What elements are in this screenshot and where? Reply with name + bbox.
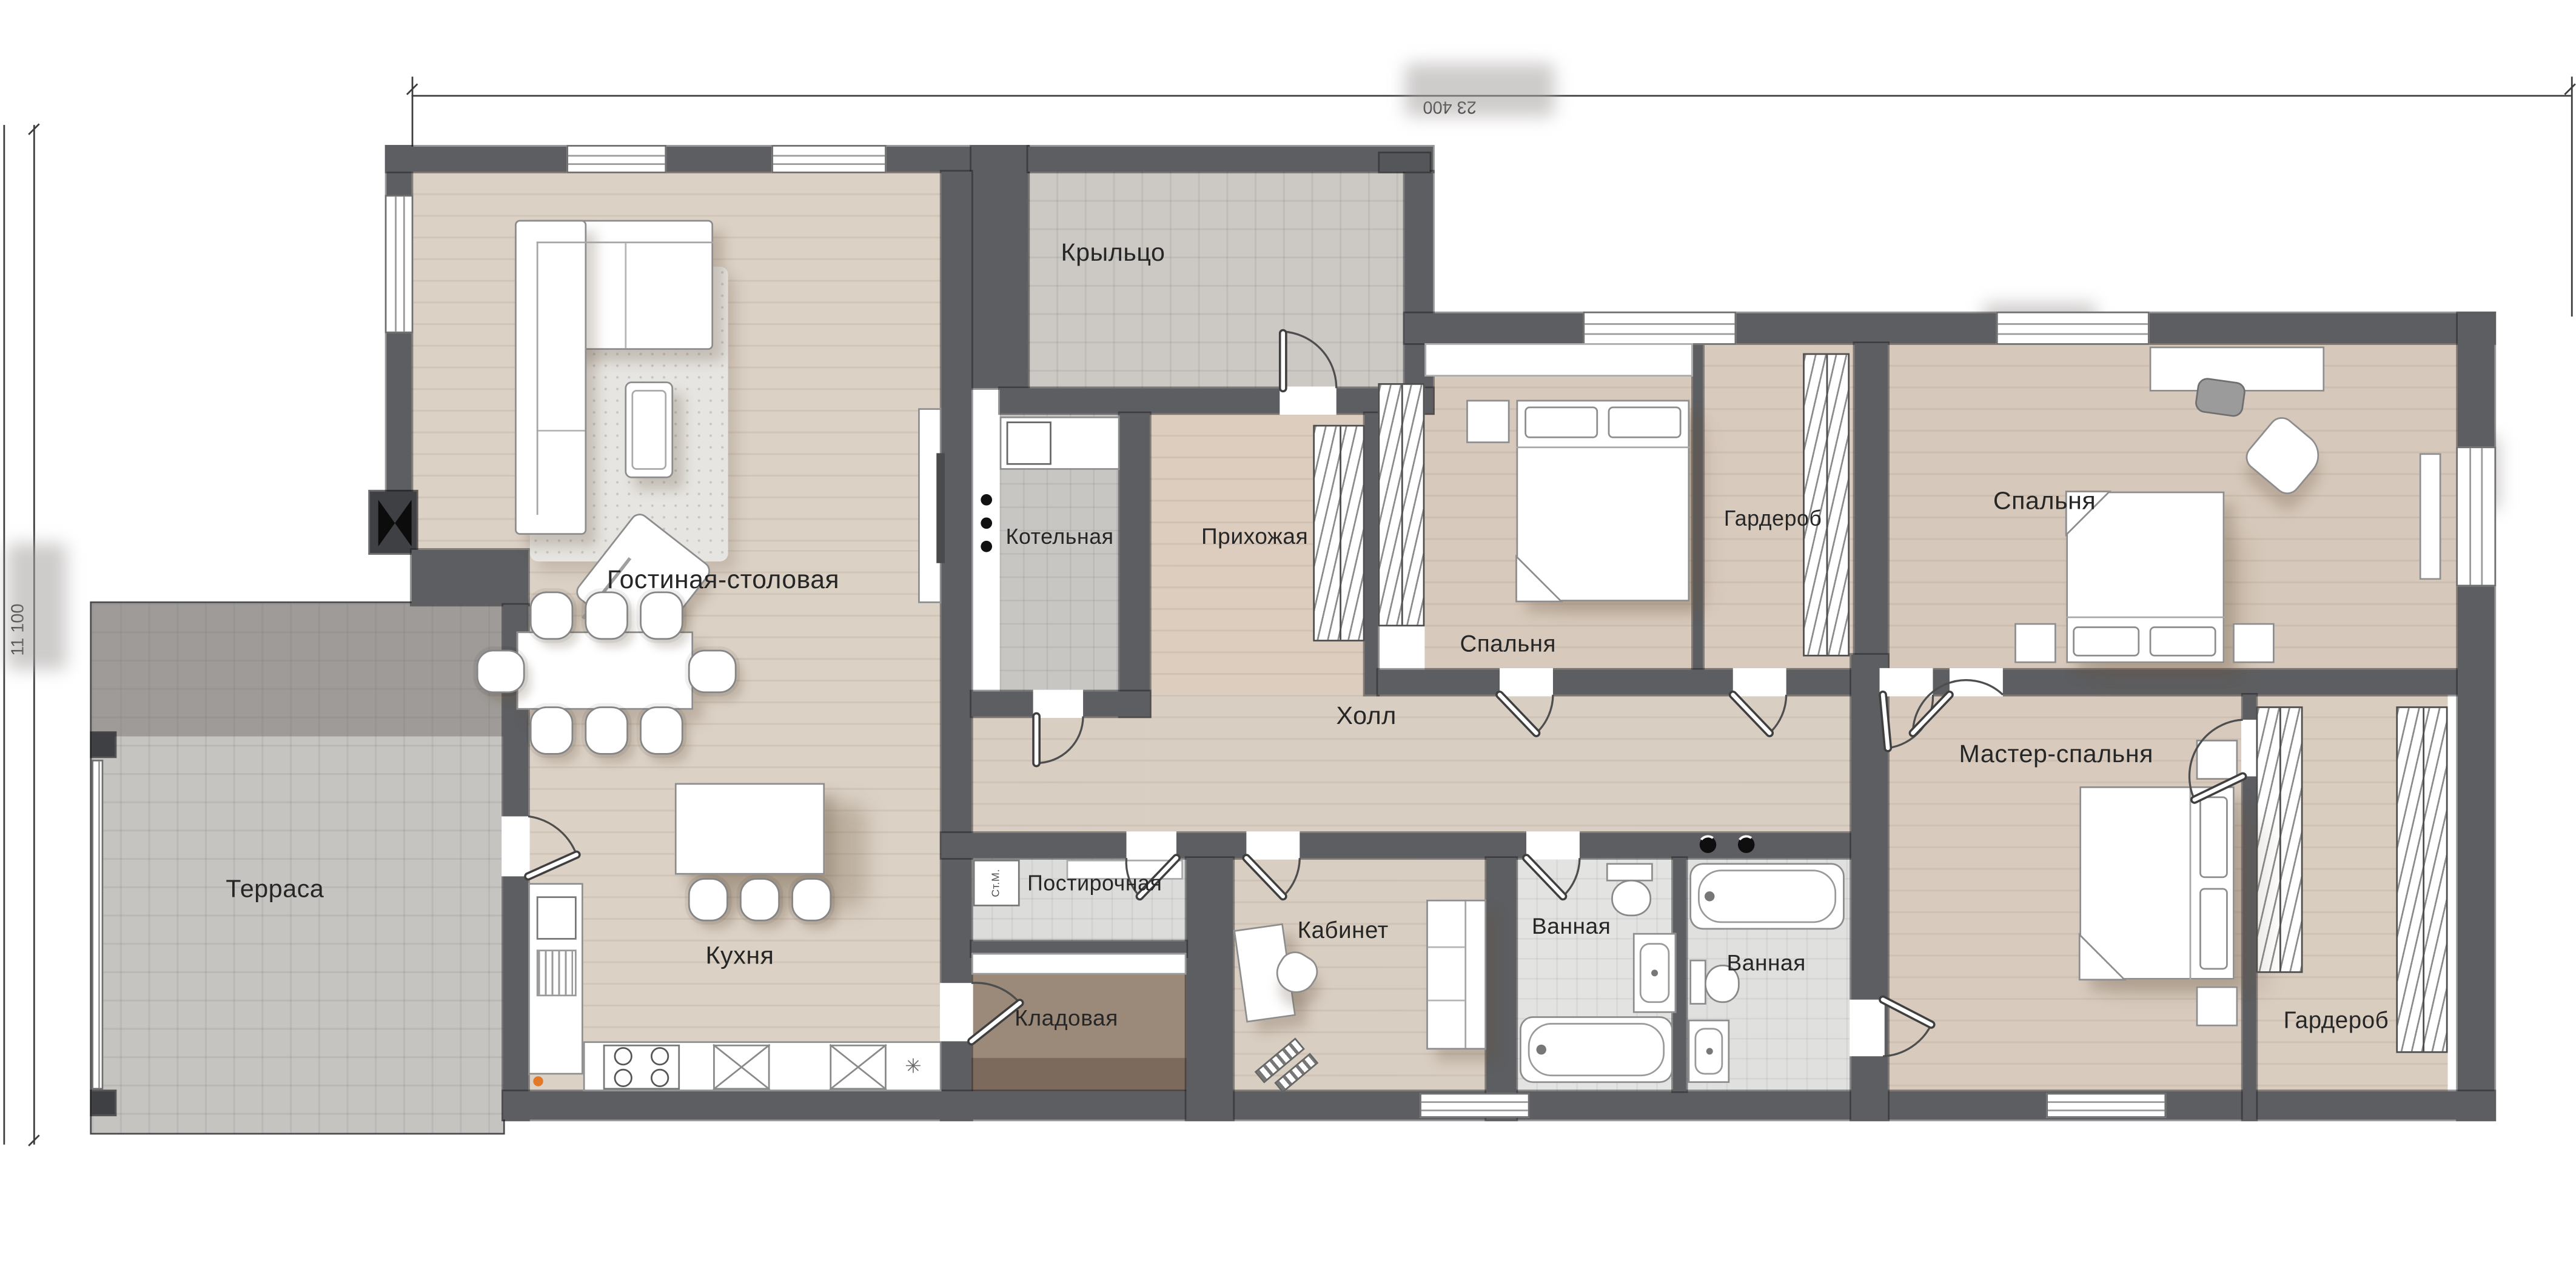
terrace-shade <box>92 603 503 737</box>
bar-stool <box>688 878 728 921</box>
wall <box>942 172 971 1119</box>
desk-chair <box>2194 377 2247 418</box>
built-in-closet <box>1424 343 1692 377</box>
base-cabinet-x <box>830 1045 886 1090</box>
pantry-shelf <box>971 953 1186 975</box>
pillow <box>2199 888 2228 970</box>
room-label-entry: Прихожая <box>1201 524 1308 549</box>
room-label-office: Кабинет <box>1298 916 1389 943</box>
room-label-bathroom-2: Ванная <box>1726 951 1805 976</box>
closet-hatch <box>1803 353 1850 657</box>
sheet-line <box>2066 617 2224 618</box>
window <box>1996 312 2150 345</box>
window <box>771 145 887 173</box>
floor-plan-screenshot: 23 400 11 100 <box>0 0 2576 1286</box>
wall <box>971 147 1028 388</box>
terrace-rail <box>92 760 103 1090</box>
chimney-stub <box>1380 153 1429 172</box>
porch-floor <box>1028 172 1404 388</box>
base-cabinet-x <box>713 1045 770 1090</box>
nightstand <box>2014 623 2056 663</box>
dim-line-left-outer <box>3 125 5 1145</box>
door-opening <box>1950 668 2003 697</box>
wall <box>386 147 1028 172</box>
dining-table <box>517 631 693 709</box>
washbasin-bowl <box>1640 943 1669 1003</box>
closet-hatch <box>2396 706 2447 1053</box>
window <box>2456 446 2496 586</box>
terrace-post <box>92 1091 115 1114</box>
room-label-master-bedroom: Мастер-спальня <box>1959 740 2154 769</box>
closet-hatch <box>1313 425 1364 641</box>
kitchen-sink <box>537 896 577 939</box>
wall <box>1486 858 1516 1119</box>
stove <box>603 1045 680 1090</box>
wall <box>1186 858 1233 1119</box>
dining-chair <box>530 591 573 640</box>
boiler-unit <box>1007 421 1052 464</box>
washing-machine-label: Ст.М. <box>991 869 1002 897</box>
sofa-back-line <box>537 241 538 515</box>
dish-rack <box>537 949 577 996</box>
toilet-tank <box>1606 863 1653 881</box>
office-sofa-line <box>1464 902 1466 1048</box>
sofa-chaise <box>515 220 586 535</box>
door-opening <box>501 816 530 876</box>
wall <box>1854 343 1888 695</box>
fridge-snowflake-icon: ✳ <box>905 1054 922 1077</box>
pillow <box>1524 406 1598 438</box>
wall <box>942 833 1883 858</box>
door-opening <box>1526 831 1580 860</box>
room-label-laundry: Постирочная <box>1027 871 1162 896</box>
wall <box>1000 388 1433 413</box>
dining-chair <box>585 706 628 755</box>
sofa-cushion-line <box>538 430 585 432</box>
blur-patch <box>7 543 67 670</box>
tv <box>936 453 945 563</box>
door-opening <box>1880 668 1933 697</box>
wall <box>1404 313 2494 343</box>
room-label-bedroom-2: Спальня <box>1993 487 2096 516</box>
room-label-porch: Крыльцо <box>1061 239 1166 267</box>
room-label-boiler: Котельная <box>1006 524 1114 549</box>
dim-tick <box>2564 83 2576 95</box>
pillow <box>2150 626 2216 656</box>
window <box>2046 1093 2166 1118</box>
wall <box>412 550 528 605</box>
window <box>566 145 666 173</box>
floor-plan: 23 400 11 100 <box>0 0 2576 1286</box>
dim-ext-right <box>2571 76 2573 316</box>
window <box>1583 312 1736 345</box>
closet-hatch <box>1378 383 1424 626</box>
window <box>385 195 414 333</box>
hall-floor <box>971 717 1150 833</box>
office-sofa <box>1426 900 1486 1050</box>
wall <box>2458 313 2494 1120</box>
pillow <box>2199 796 2228 878</box>
room-label-living-dining: Гостиная-столовая <box>607 566 839 596</box>
door-opening <box>1033 690 1083 718</box>
chimney-block <box>370 492 417 554</box>
bathtub-inner <box>1698 869 1836 923</box>
hall-floor <box>1150 695 1851 833</box>
door-opening <box>1733 668 1786 697</box>
decor-dot <box>533 1076 543 1086</box>
bar-stool <box>791 878 831 921</box>
door-opening <box>1850 1000 1885 1056</box>
wall <box>1028 147 1433 172</box>
washbasin-bowl <box>1695 1028 1723 1074</box>
bathtub-inner <box>1528 1023 1665 1076</box>
office-sofa-line <box>1428 946 1464 948</box>
room-label-terrace: Терраса <box>226 876 324 904</box>
sheet-line <box>1516 446 1689 448</box>
dining-chair <box>688 650 737 693</box>
blur-patch <box>1404 63 1554 116</box>
nightstand <box>1466 400 1509 443</box>
pantry-floor-dark <box>971 1058 1186 1091</box>
dining-chair <box>585 591 628 640</box>
pillow <box>1608 406 1682 438</box>
bar-stool <box>740 878 780 921</box>
sheet-line <box>2190 786 2192 980</box>
dining-chair <box>530 706 573 755</box>
room-label-kitchen: Кухня <box>705 942 774 971</box>
nightstand <box>2233 623 2275 663</box>
door-opening <box>1246 831 1300 860</box>
door-opening <box>1280 386 1336 415</box>
radiator <box>2420 453 2441 580</box>
room-label-wardrobe-1: Гардероб <box>1724 506 1822 531</box>
wall <box>1364 413 1378 694</box>
toilet-bowl <box>1611 880 1651 916</box>
coffee-table-top <box>631 390 666 470</box>
sofa-cushion-line <box>625 243 626 348</box>
office-sofa-line <box>1428 1000 1464 1002</box>
door-opening <box>2241 720 2258 776</box>
room-label-pantry: Кладовая <box>1015 1005 1118 1030</box>
room-label-bathroom-1: Ванная <box>1532 914 1611 939</box>
nightstand <box>2196 986 2238 1026</box>
wall <box>1404 172 1433 413</box>
room-label-hall: Холл <box>1337 702 1397 731</box>
terrace-post <box>92 733 115 756</box>
dining-chair <box>477 650 525 693</box>
pillow <box>2073 626 2139 656</box>
room-label-wardrobe-2: Гардероб <box>2284 1006 2389 1033</box>
wall <box>1120 413 1150 716</box>
door-opening <box>1500 668 1553 697</box>
room-label-bedroom-1: Спальня <box>1460 630 1556 657</box>
door-opening <box>940 983 973 1041</box>
nightstand <box>2196 740 2238 780</box>
toilet-tank <box>1689 960 1706 1005</box>
door-opening <box>1127 831 1176 860</box>
dining-chair <box>640 591 683 640</box>
dining-chair <box>640 706 683 755</box>
window <box>1420 1093 1529 1118</box>
kitchen-island <box>675 783 825 874</box>
